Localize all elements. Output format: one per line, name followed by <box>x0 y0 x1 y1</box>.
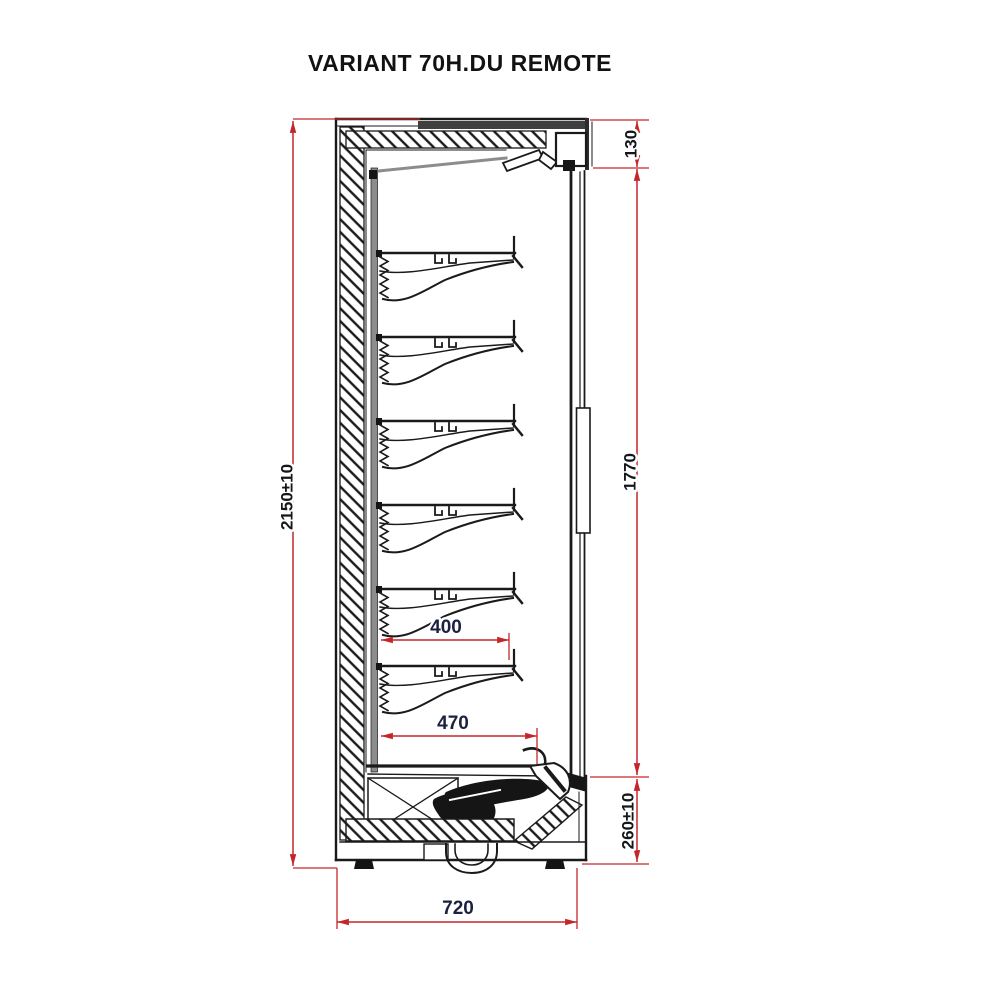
glass-door <box>558 170 590 792</box>
upper-shelf-depth-label: 400 <box>430 617 462 638</box>
left-wall <box>336 119 378 860</box>
overall-height-label: 2150±10 <box>278 464 297 530</box>
shelf-6 <box>376 650 522 713</box>
door-opening-height-label: 1770 <box>621 453 640 491</box>
bracket-mount <box>380 257 388 298</box>
top-canopy <box>336 119 592 171</box>
bottom-shelf-depth-label: 470 <box>437 713 469 734</box>
shelf-3 <box>376 405 522 468</box>
base-height-label: 260±10 <box>619 793 638 850</box>
shelf-2 <box>376 321 522 384</box>
machine-compartment <box>336 763 586 873</box>
cabinet-body <box>336 119 592 873</box>
door-handle <box>577 408 591 533</box>
door-top-hinge <box>563 160 575 171</box>
overall-depth-label: 720 <box>442 898 474 919</box>
inner-back-liner <box>371 168 378 772</box>
shelf-bracket <box>383 262 513 300</box>
left-foot <box>354 860 374 869</box>
shelf-1 <box>376 237 522 300</box>
cabinet-section-drawing: 2150±10 130 1770 260±10 720 400 470 <box>0 0 1000 1000</box>
shelf-4 <box>376 489 522 552</box>
canopy-height-label: 130 <box>622 130 641 158</box>
bottom-deck <box>368 748 552 776</box>
technical-drawing-page: VARIANT 70H.DU REMOTE <box>0 0 1000 1000</box>
drain-trap <box>446 844 497 873</box>
dim-right-column <box>582 120 649 864</box>
right-foot <box>545 860 565 869</box>
air-deflector <box>503 150 543 171</box>
base-insulation <box>346 819 514 841</box>
